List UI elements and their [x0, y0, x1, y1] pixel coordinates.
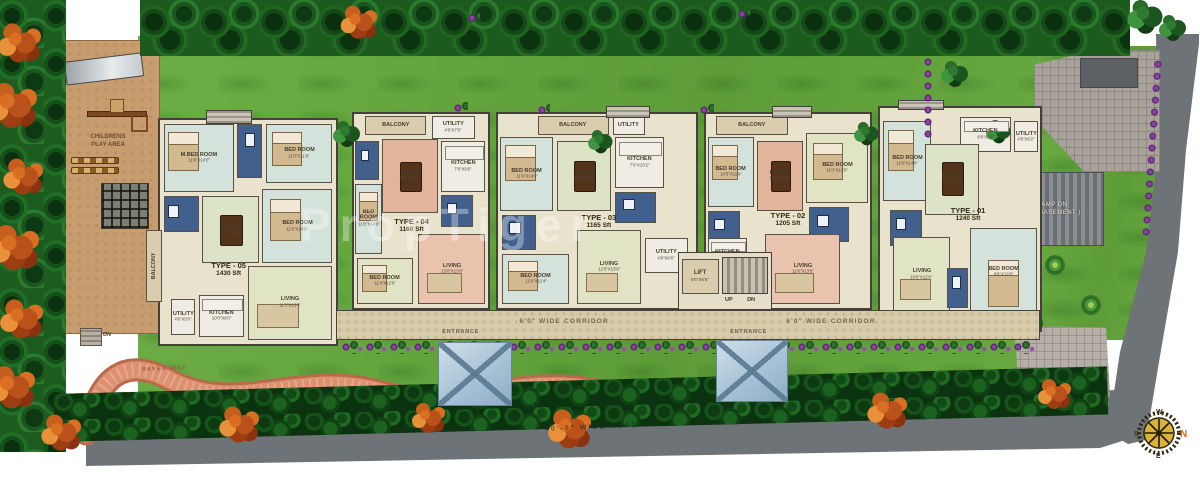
top-tree-border — [140, 0, 1130, 56]
sofa-furniture — [427, 273, 462, 293]
room-bedroom: BED ROOM 11'6"X14'6" — [500, 137, 553, 211]
unit-label: TYPE - 01 1240 Sft — [941, 206, 995, 222]
tree — [1166, 20, 1176, 30]
room-dims: 4'6"X7'6" — [445, 129, 462, 133]
room-dining: DINING 10'0"X11'4" — [557, 141, 610, 211]
room-dims: 11'6"X14'0" — [286, 227, 308, 231]
unit-label: TYPE - 04 1160 Sft — [383, 217, 439, 233]
room-bedroom: BED ROOM 11'0"X11'6" — [266, 124, 333, 182]
room-label: DINING — [574, 170, 593, 176]
room-bedroom: BED ROOM 11'0"X12'6" — [806, 133, 868, 203]
room-label: KITCHEN — [209, 310, 234, 316]
room-dims: 12'0"X13'6" — [598, 268, 620, 272]
room-lift: LIFT 6'6"X6'6" — [682, 259, 719, 295]
compass-center — [1156, 430, 1161, 435]
room-label: BALCONY — [151, 253, 157, 280]
room-dims: 9'6"X12'6" — [993, 273, 1013, 277]
stair-lift-core: LIFT 6'6"X6'6" UP DN — [678, 252, 772, 310]
steps-dn-label: DN — [103, 332, 111, 338]
room-label: BED ROOM — [512, 168, 542, 174]
room-dims: 12'0"X11'4" — [525, 280, 547, 284]
room-bedroom: BED ROOM 10'6"X11'6" — [708, 137, 754, 207]
room-bedroom: BED ROOM 11'6"X14'0" — [262, 189, 332, 263]
unit-label: TYPE - 03 1165 Sft — [569, 213, 628, 229]
seesaw-equipment — [87, 111, 147, 117]
room-label: BED ROOM — [520, 273, 550, 279]
room-toilet — [355, 141, 379, 180]
entrance-canopy — [438, 342, 512, 406]
room-dims: 10'0"X13'6" — [441, 270, 463, 274]
corridor-label: 6'0" WIDE CORRIDOR — [786, 318, 875, 325]
toilet-fixture — [168, 205, 179, 219]
room-living: LIVING 12'0"X13'6" — [577, 230, 640, 304]
room-utility: UTILITY 4'6"X5'0" — [171, 299, 196, 335]
room-dims: 4'6"X5'0" — [174, 318, 191, 322]
toilet-fixture — [817, 215, 829, 227]
room-label: KITCHEN — [973, 129, 998, 135]
unit-type-label: TYPE - 05 — [202, 261, 255, 270]
room-bedroom: BED ROOM 11'0"X14'6" — [355, 184, 382, 254]
room-balcony: BALCONY — [716, 116, 788, 135]
autumn-tree — [350, 14, 361, 25]
room-toilet — [947, 268, 968, 308]
tree — [1137, 7, 1150, 20]
stair-block — [898, 100, 944, 110]
room-dims: 11'6"X14'6" — [896, 162, 918, 166]
room-toilet — [502, 215, 536, 250]
room-dims: 8'0"X9'6" — [977, 136, 994, 140]
autumn-tree — [1046, 386, 1056, 396]
stairs-dn-label: DN — [747, 297, 755, 303]
room-dims: 10'6"X12'6" — [911, 275, 933, 279]
compass-east: E — [1156, 453, 1161, 460]
childrens-play-area: CHILDRENS PLAY AREA — [56, 40, 160, 334]
entrance-label: ENTRANCE — [442, 329, 479, 335]
unit-area-label: 1205 Sft — [758, 220, 817, 227]
corridor-label: 6'0" WIDE CORRIDOR — [520, 318, 609, 325]
utility-structure-block — [1080, 58, 1138, 88]
room-living: LIVING 10'6"X12'6" — [893, 237, 951, 312]
room-dims: 11'6"X13'6" — [792, 270, 814, 274]
room-label: DINING — [221, 224, 240, 230]
unit-type-label: TYPE - 02 — [758, 211, 817, 220]
palm-tree — [1046, 256, 1064, 274]
site-plan-canvas: RAMP DN ( TO BASEMENT ) CHILDRENS PLAY A… — [0, 0, 1200, 481]
room-label: LIVING — [794, 263, 812, 269]
kitchen-counter — [445, 146, 484, 160]
unit-area-label: 1160 Sft — [383, 226, 439, 233]
room-dims: 10'0"X11'4" — [573, 177, 595, 181]
play-area-label-line1: CHILDRENS — [90, 134, 125, 140]
room-dims: 10'6"X11'6" — [220, 231, 242, 235]
garden-steps — [80, 328, 102, 346]
flower-bush — [736, 8, 750, 18]
compass-south: S — [1134, 431, 1139, 438]
flower-bush — [536, 104, 550, 114]
room-dims: 11'6"X14'0" — [188, 159, 210, 163]
corridor: 6'0" WIDE CORRIDOR 6'0" WIDE CORRIDOR EN… — [336, 310, 1040, 340]
room-dims: 4'6"X6'2" — [1018, 138, 1035, 142]
room-label: BED ROOM — [357, 210, 380, 222]
tree — [861, 127, 870, 136]
room-label: KITCHEN — [451, 160, 476, 166]
compass-north: N — [1180, 429, 1187, 440]
room-kitchen: KITCHEN 7'6"X9'6" — [441, 141, 485, 191]
room-label: UTILITY — [618, 123, 639, 129]
room-label: LIVING — [600, 261, 618, 267]
unit-type-label: TYPE - 03 — [569, 213, 628, 222]
room-bedroom: BED ROOM 9'6"X12'6" — [970, 228, 1037, 317]
unit-type-label: TYPE - 04 — [383, 217, 439, 226]
sofa-furniture — [586, 273, 619, 292]
tree — [948, 66, 958, 76]
room-kitchen: KITCHEN 10'0"X8'0" — [199, 295, 245, 338]
play-area-label-line2: PLAY AREA — [91, 142, 125, 148]
room-dining: DINING 10'0"X11'6" — [382, 139, 438, 213]
room-utility: UTILITY — [613, 116, 645, 135]
room-label: BED ROOM — [822, 162, 852, 168]
room-label: UTILITY — [172, 311, 193, 317]
room-living: LIVING 11'3"X13'6" — [248, 266, 332, 340]
unit-type-04: BALCONY UTILITY 4'6"X7'6" DINING 10'0"X1… — [352, 112, 490, 310]
unit-type-01: BED ROOM 11'6"X14'6" KITCHEN 8'0"X9'6" U… — [878, 106, 1042, 332]
room-dims: 11'0"X14'6" — [358, 223, 380, 227]
room-balcony: BALCONY — [365, 116, 427, 135]
room-label: M.BED ROOM — [180, 152, 216, 158]
autumn-tree — [0, 376, 14, 390]
room-dims: 10'2"X11'6" — [769, 177, 791, 181]
flower-border — [922, 56, 932, 142]
autumn-tree — [9, 33, 22, 46]
room-dims: 11'3"X13'6" — [279, 304, 301, 308]
autumn-tree — [11, 309, 24, 322]
room-label: LIVING — [281, 297, 299, 303]
room-dining: DINING 10'6"X11'6" — [202, 196, 258, 263]
room-master-bedroom: M.BED ROOM 11'6"X14'0" — [164, 124, 234, 191]
room-label: BED ROOM — [715, 166, 745, 172]
room-dining: DINING 10'2"X11'6" — [757, 141, 803, 211]
stair-block — [772, 106, 812, 118]
entrance-label: ENTRANCE — [730, 329, 767, 335]
room-label: BED ROOM — [282, 220, 312, 226]
room-bedroom: BED ROOM 11'4"X12'6" — [357, 258, 413, 305]
autumn-tree — [2, 236, 17, 251]
lift-dims: 6'6"X6'6" — [691, 278, 709, 283]
unit-type-05: M.BED ROOM 11'6"X14'0" BED ROOM 11'0"X11… — [158, 118, 338, 346]
unit-label: TYPE - 02 1205 Sft — [758, 211, 817, 227]
toilet-fixture — [952, 276, 960, 289]
room-bedroom: BED ROOM 12'0"X11'4" — [502, 254, 569, 304]
flower-bush — [452, 102, 468, 112]
entrance-canopy — [716, 340, 788, 402]
toilet-fixture — [447, 203, 457, 214]
room-dims: 7'6"X9'6" — [455, 167, 472, 171]
room-living: LIVING 10'0"X13'6" — [418, 234, 485, 304]
autumn-tree — [877, 401, 889, 413]
room-label: UTILITY — [1016, 131, 1037, 137]
room-dims: 11'6"X14'6" — [516, 175, 538, 179]
stair-block — [606, 106, 650, 118]
stairs-up-label: UP — [725, 297, 733, 303]
room-label: DINING — [942, 173, 961, 179]
room-toilet — [237, 124, 262, 178]
autumn-tree — [0, 94, 15, 109]
room-label: LIVING — [912, 269, 930, 275]
kitchen-counter — [619, 142, 663, 156]
room-label: BED ROOM — [370, 275, 400, 281]
toilet-fixture — [361, 150, 370, 162]
room-label: BED ROOM — [284, 148, 314, 154]
toilet-fixture — [245, 133, 255, 147]
autumn-tree — [13, 167, 25, 179]
room-balcony: BALCONY — [146, 230, 162, 302]
autumn-tree — [51, 423, 63, 435]
tree — [595, 135, 604, 144]
room-kitchen: KITCHEN 7'0"X10'2" — [615, 137, 665, 187]
flower-bush — [698, 104, 714, 114]
room-dims: 11'0"X12'6" — [826, 169, 848, 173]
room-label: BALCONY — [382, 123, 409, 129]
slide-equipment — [64, 52, 144, 85]
room-dining: DINING 11'0"X12'6" — [925, 144, 979, 215]
toilet-fixture — [509, 222, 520, 233]
room-label: DINING — [401, 170, 420, 176]
room-dims: 10'6"X11'6" — [720, 173, 742, 177]
toilet-fixture — [714, 219, 725, 231]
room-toilet — [441, 195, 473, 226]
sofa-furniture — [775, 273, 814, 293]
balance-beam — [71, 157, 119, 164]
room-balcony: BALCONY — [538, 116, 609, 135]
room-dims: 10'0"X11'6" — [399, 177, 421, 181]
staircase — [722, 257, 768, 294]
unit-type-label: TYPE - 01 — [941, 206, 995, 215]
tree — [340, 126, 350, 136]
room-label: BALCONY — [560, 123, 587, 129]
room-dims: 11'0"X11'6" — [288, 155, 309, 159]
room-dims: 7'0"X10'2" — [630, 163, 650, 167]
palm-tree — [1082, 296, 1100, 314]
autumn-tree — [229, 415, 241, 427]
room-utility: UTILITY 4'6"X6'2" — [1014, 121, 1038, 152]
toilet-fixture — [623, 199, 635, 210]
room-label: BED ROOM — [892, 155, 922, 161]
stair-block — [206, 110, 252, 124]
room-utility: UTILITY 4'6"X7'6" — [432, 116, 475, 139]
room-dims: 11'4"X12'6" — [374, 282, 396, 286]
lift-label: LIFT — [694, 270, 707, 277]
autumn-tree — [420, 410, 430, 420]
sofa-furniture — [900, 279, 931, 300]
balance-beam — [71, 167, 119, 174]
room-toilet — [164, 196, 199, 232]
compass-rose: W S E N — [1134, 406, 1192, 460]
room-dims: 4'6"X6'6" — [658, 257, 675, 261]
room-label: BED ROOM — [988, 266, 1018, 272]
room-label: UTILITY — [656, 250, 677, 256]
room-label: BALCONY — [738, 123, 765, 129]
room-label: LIVING — [443, 263, 461, 269]
room-dims: 11'0"X12'6" — [941, 180, 963, 184]
compass-west: W — [1156, 409, 1163, 416]
flower-bush — [466, 12, 480, 22]
room-dims: 10'0"X8'0" — [212, 317, 232, 321]
unit-label: TYPE - 05 1430 Sft — [202, 261, 255, 277]
room-label: DINING — [770, 170, 789, 176]
room-label: KITCHEN — [627, 157, 652, 163]
unit-area-label: 1240 Sft — [941, 215, 995, 222]
toilet-fixture — [896, 218, 906, 230]
unit-area-label: 1430 Sft — [202, 270, 255, 277]
room-label: UTILITY — [443, 122, 464, 128]
room-living: LIVING 11'6"X13'6" — [765, 234, 840, 304]
play-area-label: CHILDRENS PLAY AREA — [57, 133, 159, 150]
climbing-frame — [101, 183, 149, 229]
unit-area-label: 1165 Sft — [569, 222, 628, 229]
